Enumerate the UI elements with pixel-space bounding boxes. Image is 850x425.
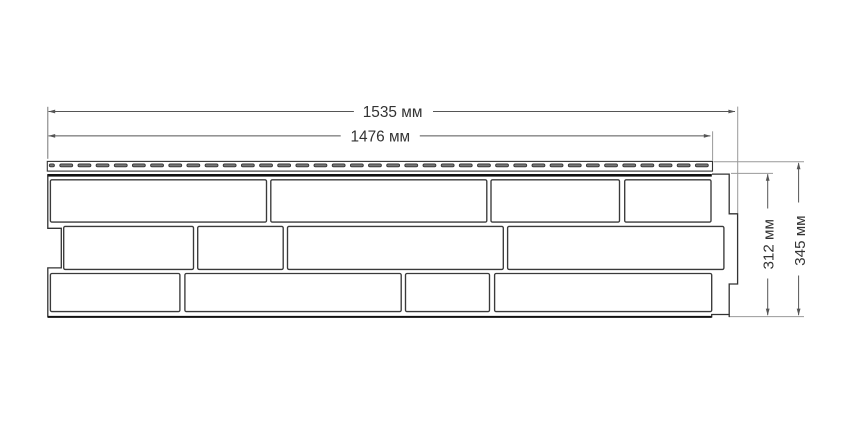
svg-text:1476 мм: 1476 мм [350,129,410,146]
svg-text:1535 мм: 1535 мм [363,104,423,121]
svg-text:345 мм: 345 мм [792,215,809,265]
svg-text:312 мм: 312 мм [761,219,778,269]
